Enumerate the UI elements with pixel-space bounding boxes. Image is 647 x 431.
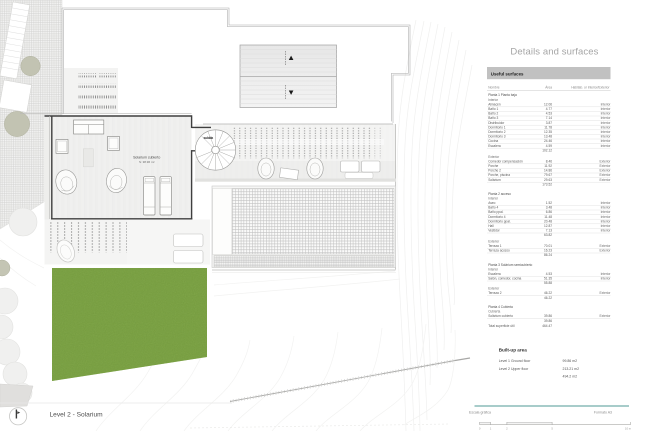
svg-text:Porche, piscina: Porche, piscina bbox=[488, 173, 510, 177]
svg-text:Almacén: Almacén bbox=[488, 102, 501, 106]
svg-text:Exterior: Exterior bbox=[600, 169, 612, 173]
svg-text:Interior: Interior bbox=[601, 272, 612, 276]
svg-text:Interior: Interior bbox=[601, 112, 612, 116]
svg-text:Solárium cubierto: Solárium cubierto bbox=[488, 314, 513, 318]
svg-text:8.46: 8.46 bbox=[546, 159, 552, 163]
svg-text:6.86: 6.86 bbox=[546, 210, 552, 214]
svg-text:Exterior: Exterior bbox=[600, 291, 612, 295]
svg-text:Interior: Interior bbox=[601, 277, 612, 281]
svg-text:Interior: Interior bbox=[601, 130, 612, 134]
svg-text:Interior: Interior bbox=[601, 219, 612, 223]
svg-text:Porche: Porche bbox=[488, 164, 498, 168]
svg-text:Escalera: Escalera bbox=[488, 144, 501, 148]
svg-text:Exterior: Exterior bbox=[488, 155, 500, 159]
svg-text:Baño 2: Baño 2 bbox=[488, 112, 498, 116]
svg-text:4.77: 4.77 bbox=[546, 107, 552, 111]
svg-text:Interior: Interior bbox=[601, 224, 612, 228]
svg-text:Interior: Interior bbox=[488, 267, 499, 271]
svg-text:29.63: 29.63 bbox=[544, 178, 552, 182]
svg-text:Interior: Interior bbox=[601, 116, 612, 120]
svg-text:Cubierta: Cubierta bbox=[488, 310, 500, 314]
svg-text:4.59: 4.59 bbox=[546, 144, 552, 148]
svg-text:Aseo: Aseo bbox=[488, 201, 495, 205]
svg-text:Exterior: Exterior bbox=[600, 164, 612, 168]
svg-text:Dormitorio ppal.: Dormitorio ppal. bbox=[488, 219, 511, 223]
svg-text:12.35: 12.35 bbox=[544, 130, 552, 134]
svg-text:12.87: 12.87 bbox=[544, 224, 552, 228]
svg-text:99.86 m2: 99.86 m2 bbox=[563, 359, 578, 363]
svg-text:Cocina: Cocina bbox=[488, 139, 498, 143]
svg-text:Hall: Hall bbox=[488, 224, 494, 228]
svg-text:14.86: 14.86 bbox=[544, 169, 552, 173]
svg-text:Terraza 2: Terraza 2 bbox=[488, 291, 502, 295]
svg-text:46.22: 46.22 bbox=[544, 291, 552, 295]
svg-text:Baño ppal.: Baño ppal. bbox=[488, 210, 503, 214]
svg-text:12.06: 12.06 bbox=[544, 102, 552, 106]
svg-text:16.23: 16.23 bbox=[544, 249, 552, 253]
svg-text:Exterior: Exterior bbox=[488, 239, 500, 243]
svg-text:63.82: 63.82 bbox=[544, 233, 552, 237]
svg-text:7.13: 7.13 bbox=[546, 229, 552, 233]
svg-text:Terraza acceso: Terraza acceso bbox=[488, 249, 510, 253]
svg-text:Planta 4 Cubierta: Planta 4 Cubierta bbox=[488, 305, 513, 309]
svg-text:3.48: 3.48 bbox=[546, 206, 552, 210]
svg-text:Interior: Interior bbox=[601, 144, 612, 148]
svg-text:Porche 2: Porche 2 bbox=[488, 169, 501, 173]
svg-text:Planta 2 acceso: Planta 2 acceso bbox=[488, 192, 511, 196]
svg-text:70.01: 70.01 bbox=[544, 244, 552, 248]
svg-text:3.87: 3.87 bbox=[546, 121, 552, 125]
svg-text:494.2 m2: 494.2 m2 bbox=[563, 375, 578, 379]
svg-text:Interior: Interior bbox=[601, 201, 612, 205]
svg-text:Baño 1: Baño 1 bbox=[488, 107, 498, 111]
svg-text:Interior: Interior bbox=[601, 135, 612, 139]
svg-text:86.24: 86.24 bbox=[544, 253, 552, 257]
svg-text:Área: Área bbox=[545, 86, 552, 90]
svg-text:10 m: 10 m bbox=[625, 427, 632, 431]
svg-text:Interior: Interior bbox=[601, 229, 612, 233]
svg-text:subida: subida bbox=[204, 136, 214, 140]
svg-text:13.48: 13.48 bbox=[544, 135, 552, 139]
svg-text:Terraza 1: Terraza 1 bbox=[488, 244, 502, 248]
svg-text:S: 38.96 m²: S: 38.96 m² bbox=[139, 160, 155, 164]
svg-text:Interior: Interior bbox=[601, 215, 612, 219]
svg-text:Baño 3: Baño 3 bbox=[488, 116, 498, 120]
svg-text:46.22: 46.22 bbox=[544, 296, 552, 300]
svg-text:Total superficie útil: Total superficie útil bbox=[488, 324, 515, 328]
svg-text:51.35: 51.35 bbox=[544, 277, 552, 281]
svg-text:1.52: 1.52 bbox=[546, 201, 552, 205]
svg-text:Exterior: Exterior bbox=[600, 249, 612, 253]
svg-text:20.48: 20.48 bbox=[544, 219, 552, 223]
svg-text:Salón, comedor, cocina: Salón, comedor, cocina bbox=[488, 277, 521, 281]
svg-text:Interior: Interior bbox=[601, 107, 612, 111]
svg-text:Interior: Interior bbox=[601, 139, 612, 143]
svg-text:Distribuidor: Distribuidor bbox=[488, 121, 505, 125]
svg-text:Interior: Interior bbox=[488, 196, 499, 200]
svg-text:173.52: 173.52 bbox=[542, 182, 552, 186]
svg-text:Formato A3: Formato A3 bbox=[594, 410, 612, 414]
svg-text:39.86: 39.86 bbox=[544, 314, 552, 318]
svg-text:Planta 3 Solárium semicubierto: Planta 3 Solárium semicubierto bbox=[488, 263, 532, 267]
svg-text:Interior: Interior bbox=[601, 121, 612, 125]
svg-text:Level 1 Ground floor: Level 1 Ground floor bbox=[499, 359, 532, 363]
svg-text:Interior: Interior bbox=[601, 210, 612, 214]
svg-text:Level 2 Upper floor: Level 2 Upper floor bbox=[499, 367, 529, 371]
svg-text:Escalera: Escalera bbox=[488, 272, 501, 276]
svg-text:213.21 m2: 213.21 m2 bbox=[563, 367, 580, 371]
svg-text:Exterior: Exterior bbox=[488, 287, 500, 291]
svg-text:Dormitorio 4: Dormitorio 4 bbox=[488, 215, 506, 219]
svg-text:464.47: 464.47 bbox=[542, 324, 552, 328]
svg-text:Baño 4: Baño 4 bbox=[488, 206, 498, 210]
svg-text:7.14: 7.14 bbox=[546, 116, 552, 120]
svg-text:Useful surfaces: Useful surfaces bbox=[491, 72, 524, 77]
svg-text:Interior: Interior bbox=[488, 98, 499, 102]
svg-text:Exterior: Exterior bbox=[600, 178, 612, 182]
svg-text:Interior: Interior bbox=[601, 102, 612, 106]
svg-text:4.53: 4.53 bbox=[546, 112, 552, 116]
svg-text:Interior: Interior bbox=[601, 206, 612, 210]
svg-text:Details and surfaces: Details and surfaces bbox=[510, 47, 598, 58]
svg-text:79.67: 79.67 bbox=[544, 173, 552, 177]
svg-text:11.48: 11.48 bbox=[544, 215, 552, 219]
svg-text:39.86: 39.86 bbox=[544, 319, 552, 323]
svg-text:Nombre: Nombre bbox=[488, 86, 500, 90]
svg-text:Built-up area: Built-up area bbox=[499, 347, 528, 352]
svg-text:11.92: 11.92 bbox=[544, 164, 552, 168]
svg-text:102.12: 102.12 bbox=[542, 148, 552, 152]
svg-text:Exterior: Exterior bbox=[600, 159, 612, 163]
svg-text:Dormitorio 1: Dormitorio 1 bbox=[488, 125, 506, 129]
svg-text:11.78: 11.78 bbox=[544, 125, 552, 129]
svg-text:4.53: 4.53 bbox=[546, 272, 552, 276]
svg-text:Dormitorio 2: Dormitorio 2 bbox=[488, 130, 506, 134]
svg-text:Level 2 - Solarium: Level 2 - Solarium bbox=[50, 412, 104, 419]
svg-text:Interior: Interior bbox=[601, 125, 612, 129]
svg-text:Exterior: Exterior bbox=[600, 173, 612, 177]
svg-text:Solarium cubierto: Solarium cubierto bbox=[133, 156, 160, 160]
svg-text:Comedor compensación: Comedor compensación bbox=[488, 159, 523, 163]
svg-text:Planta 1 Planta baja: Planta 1 Planta baja bbox=[488, 93, 517, 97]
svg-text:Escala gráfica: Escala gráfica bbox=[469, 410, 491, 414]
svg-text:Solárium: Solárium bbox=[488, 178, 501, 182]
svg-text:Exterior: Exterior bbox=[600, 244, 612, 248]
svg-text:55.88: 55.88 bbox=[544, 281, 552, 285]
svg-text:Vestidor: Vestidor bbox=[488, 229, 500, 233]
svg-text:Exterior: Exterior bbox=[600, 314, 612, 318]
svg-text:24.46: 24.46 bbox=[544, 139, 552, 143]
svg-text:Habitab. or Interior/Exterior: Habitab. or Interior/Exterior bbox=[571, 86, 610, 90]
svg-text:Dormitorio 3: Dormitorio 3 bbox=[488, 135, 506, 139]
